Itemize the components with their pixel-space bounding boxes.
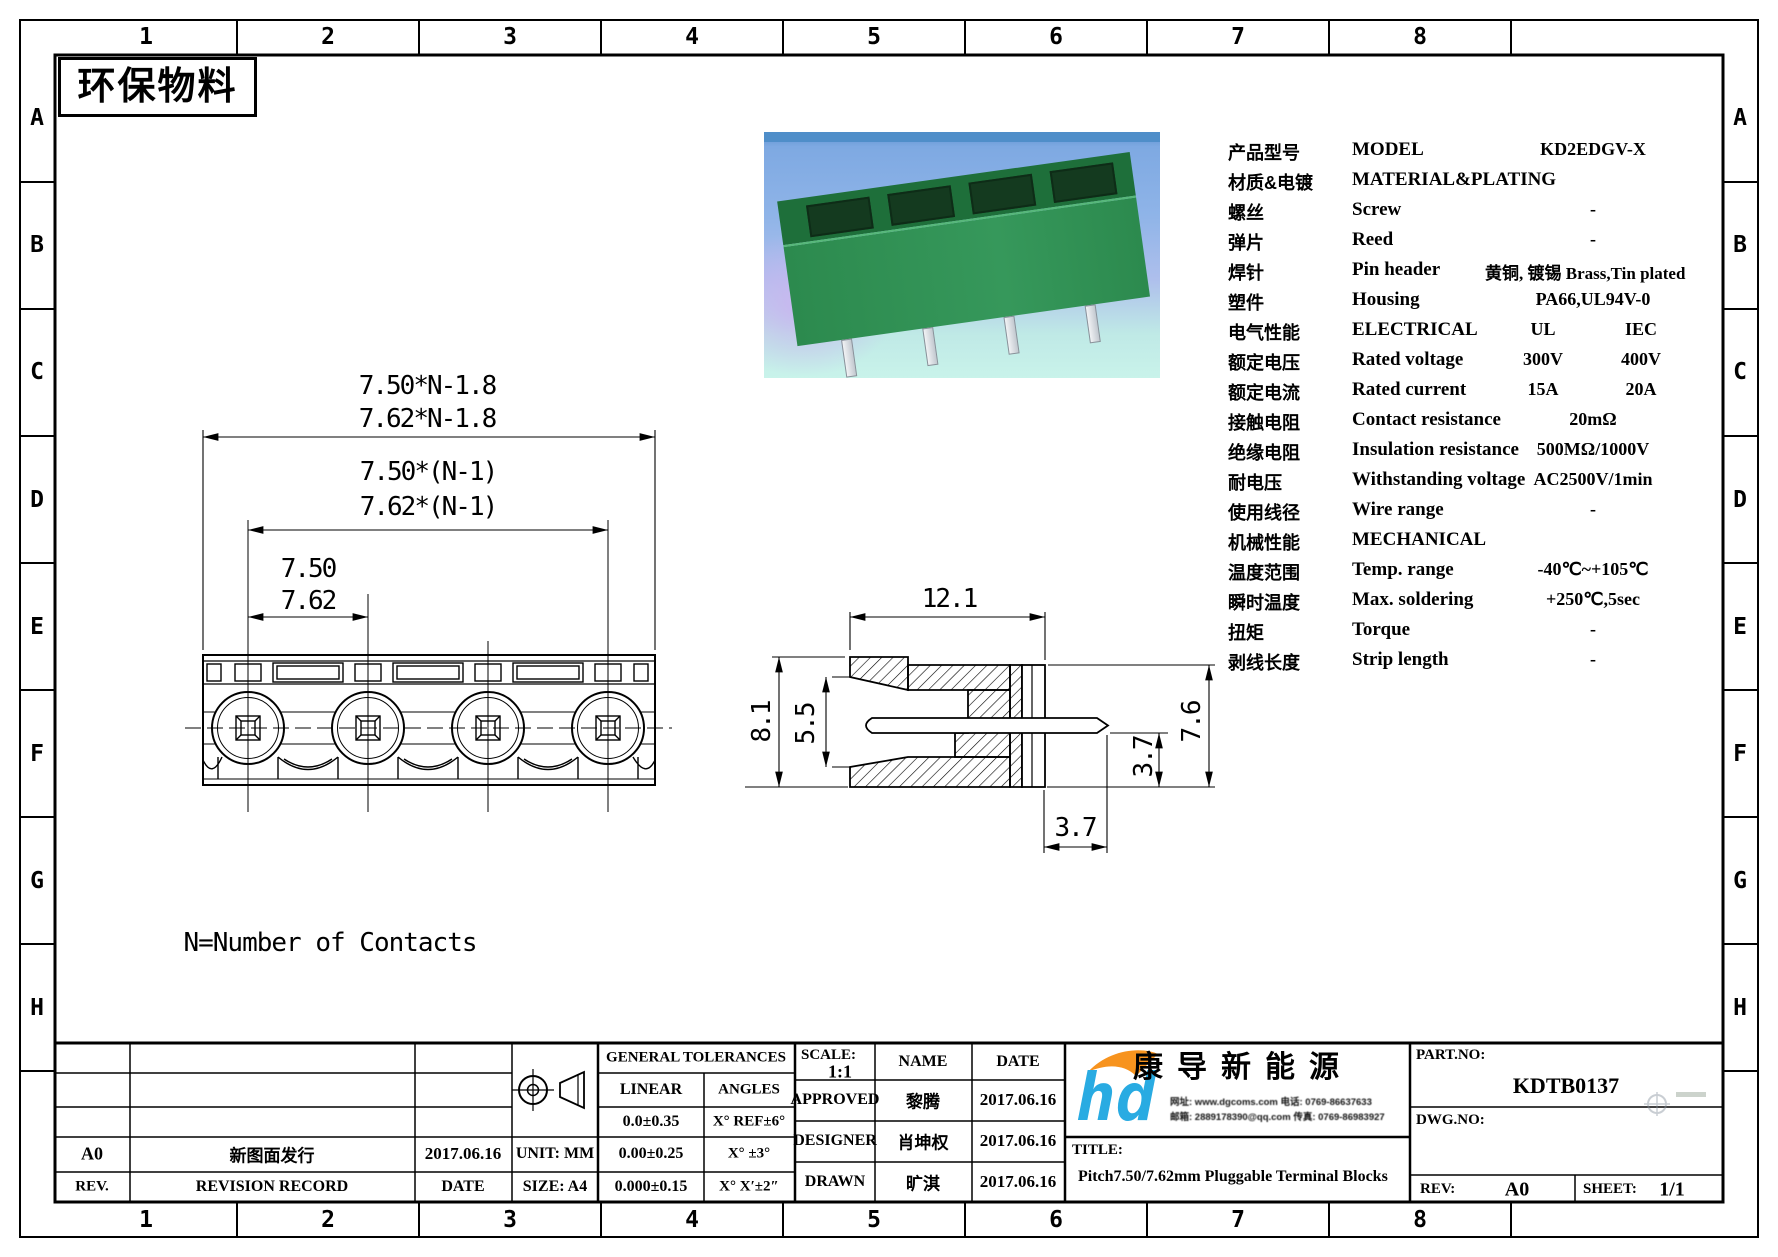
spec-row: 扭矩 Torque - <box>1228 619 1728 649</box>
spec-label-en: Housing <box>1352 289 1420 311</box>
spec-label-en: Pin header <box>1352 259 1440 281</box>
spec-label-cn: 接触电阻 <box>1228 409 1300 435</box>
grid-row-H-left: H <box>30 995 44 1021</box>
photo-top-strip <box>764 132 1160 142</box>
grid-row-B-right: B <box>1733 232 1747 258</box>
company-contact-line2: 邮箱: 2889178390@qq.com 传真: 0769-86983927 <box>1170 1111 1385 1124</box>
spec-value: - <box>1505 199 1681 220</box>
spec-label-en: MODEL <box>1352 139 1424 161</box>
spec-label-en: MECHANICAL <box>1352 529 1486 551</box>
spec-label-cn: 材质&电镀 <box>1228 169 1313 195</box>
spec-row: 螺丝 Screw - <box>1228 199 1728 229</box>
grid-row-F-left: F <box>30 741 44 767</box>
dim-pin-length-37: 3.7 <box>1055 815 1096 841</box>
dim-height-76: 7.6 <box>1179 702 1205 743</box>
contact-slot <box>806 197 874 238</box>
grid-row-G-right: G <box>1733 868 1747 894</box>
solder-pin <box>1085 304 1101 343</box>
tolerance-angle-2: X° ±3° <box>728 1146 770 1163</box>
spec-label-cn: 瞬时温度 <box>1228 589 1300 615</box>
grid-row-A-left: A <box>30 105 44 131</box>
spec-value: - <box>1505 619 1681 640</box>
revision-rev-header: REV. <box>75 1179 109 1196</box>
grid-col-3-bottom: 3 <box>503 1207 517 1233</box>
spec-value: - <box>1505 499 1681 520</box>
grid-row-E-right: E <box>1733 614 1747 640</box>
spec-row: 剥线长度 Strip length - <box>1228 649 1728 679</box>
spec-label-cn: 绝缘电阻 <box>1228 439 1300 465</box>
spec-label-cn: 耐电压 <box>1228 469 1282 495</box>
grid-col-3-top: 3 <box>503 24 517 50</box>
grid-row-C-right: C <box>1733 359 1747 385</box>
grid-col-8-bottom: 8 <box>1413 1207 1427 1233</box>
spec-row: 机械性能 MECHANICAL <box>1228 529 1728 559</box>
rev-value: A0 <box>1505 1179 1529 1202</box>
dim-span-762: 7.62*(N-1) <box>360 494 497 520</box>
spec-row: 产品型号 MODEL KD2EDGV-X <box>1228 139 1728 169</box>
grid-col-1-bottom: 1 <box>139 1207 153 1233</box>
approved-label: APPROVED <box>791 1091 880 1109</box>
company-contact-line1: 网址: www.dgcoms.com 电话: 0769-86637633 <box>1170 1096 1372 1109</box>
solder-pin <box>841 338 857 377</box>
tolerances-angles-header: ANGLES <box>718 1082 780 1099</box>
dim-total-width-762: 7.62*N-1.8 <box>359 406 496 432</box>
unit-field: UNIT: MM <box>516 1145 594 1163</box>
spec-row: 材质&电镀 MATERIAL&PLATING <box>1228 169 1728 199</box>
grid-col-7-top: 7 <box>1231 24 1245 50</box>
solder-pin <box>1003 316 1019 355</box>
grid-col-7-bottom: 7 <box>1231 1207 1245 1233</box>
tolerance-linear-2: 0.00±0.25 <box>619 1145 684 1163</box>
spec-row: 弹片 Reed - <box>1228 229 1728 259</box>
spec-row: 塑件 Housing PA66,UL94V-0 <box>1228 289 1728 319</box>
spec-row: 额定电流 Rated current 15A 20A <box>1228 379 1728 409</box>
spec-value-ul: 15A <box>1495 379 1591 400</box>
spec-label-cn: 塑件 <box>1228 289 1264 315</box>
tolerance-linear-3: 0.000±0.15 <box>615 1178 688 1196</box>
spec-label-en: Rated voltage <box>1352 349 1463 371</box>
spec-label-cn: 额定电流 <box>1228 379 1300 405</box>
dim-opening-55: 5.5 <box>793 704 819 745</box>
eco-material-stamp: 环保物料 <box>58 57 257 117</box>
spec-value: KD2EDGV-X <box>1505 139 1681 160</box>
grid-col-4-bottom: 4 <box>685 1207 699 1233</box>
approved-date: 2017.06.16 <box>980 1090 1057 1110</box>
designer-name: 肖坤权 <box>898 1129 949 1154</box>
grid-row-D-right: D <box>1733 487 1747 513</box>
spec-label-cn: 焊针 <box>1228 259 1264 285</box>
tolerance-angle-1: X° REF±6° <box>713 1114 785 1131</box>
product-photo <box>764 132 1160 378</box>
spec-label-en: Rated current <box>1352 379 1466 401</box>
spec-label-cn: 剥线长度 <box>1228 649 1300 675</box>
spec-value: +250℃,5sec <box>1505 589 1681 610</box>
grid-col-5-bottom: 5 <box>867 1207 881 1233</box>
grid-row-B-left: B <box>30 232 44 258</box>
drawing-title: Pitch7.50/7.62mm Pluggable Terminal Bloc… <box>1078 1168 1388 1186</box>
spec-value-iec: 20A <box>1593 379 1689 400</box>
grid-col-1-top: 1 <box>139 24 153 50</box>
spec-value-iec: IEC <box>1593 319 1689 340</box>
front-view-drawing <box>185 430 672 812</box>
spec-row: 温度范围 Temp. range -40℃~+105℃ <box>1228 559 1728 589</box>
contacts-note: N=Number of Contacts <box>180 928 480 959</box>
spec-row: 电气性能 ELECTRICAL UL IEC <box>1228 319 1728 349</box>
grid-col-5-top: 5 <box>867 24 881 50</box>
spec-label-en: Wire range <box>1352 499 1444 521</box>
terminal-block-render <box>777 152 1151 352</box>
spec-label-cn: 弹片 <box>1228 229 1264 255</box>
third-angle-projection-icon <box>512 1069 584 1111</box>
grid-col-2-top: 2 <box>321 24 335 50</box>
designer-date: 2017.06.16 <box>980 1131 1057 1151</box>
dim-total-width-750: 7.50*N-1.8 <box>359 373 496 399</box>
spec-row: 绝缘电阻 Insulation resistance 500MΩ/1000V <box>1228 439 1728 469</box>
part-no-value: KDTB0137 <box>1513 1073 1619 1099</box>
grid-col-2-bottom: 2 <box>321 1207 335 1233</box>
spec-label-en: Contact resistance <box>1352 409 1501 431</box>
grid-row-H-right: H <box>1733 995 1747 1021</box>
spec-label-cn: 电气性能 <box>1228 319 1300 345</box>
spec-label-cn: 产品型号 <box>1228 139 1300 165</box>
grid-col-6-bottom: 6 <box>1049 1207 1063 1233</box>
dim-depth-121: 12.1 <box>922 586 977 612</box>
name-header: NAME <box>899 1053 948 1071</box>
part-no-label: PART.NO: <box>1416 1047 1485 1064</box>
spec-label-cn: 温度范围 <box>1228 559 1300 585</box>
dim-pitch-750: 7.50 <box>281 556 336 582</box>
spec-value-ul: UL <box>1495 319 1591 340</box>
dwg-no-label: DWG.NO: <box>1416 1112 1485 1129</box>
tolerances-title: GENERAL TOLERANCES <box>606 1050 786 1067</box>
spec-row: 接触电阻 Contact resistance 20mΩ <box>1228 409 1728 439</box>
spec-row: 耐电压 Withstanding voltage AC2500V/1min <box>1228 469 1728 499</box>
spec-value-ul: 300V <box>1495 349 1591 370</box>
spec-label-en: Max. soldering <box>1352 589 1473 611</box>
contact-slot <box>887 185 955 226</box>
spec-value: - <box>1505 229 1681 250</box>
grid-row-D-left: D <box>30 487 44 513</box>
tolerance-angle-3: X° X′±2″ <box>719 1179 779 1196</box>
spec-label-cn: 机械性能 <box>1228 529 1300 555</box>
spec-value: 20mΩ <box>1505 409 1681 430</box>
spec-label-cn: 额定电压 <box>1228 349 1300 375</box>
tolerances-linear-header: LINEAR <box>620 1081 682 1099</box>
spec-label-en: MATERIAL&PLATING <box>1352 169 1556 191</box>
drawn-label: DRAWN <box>805 1173 865 1191</box>
contact-slot <box>968 174 1036 215</box>
scale-value: 1:1 <box>828 1062 852 1083</box>
sheet-value: 1/1 <box>1659 1179 1685 1202</box>
spec-row: 使用线径 Wire range - <box>1228 499 1728 529</box>
approved-name: 黎腾 <box>906 1088 940 1113</box>
dim-height-81: 8.1 <box>749 702 775 743</box>
spec-label-cn: 使用线径 <box>1228 499 1300 525</box>
spec-row: 额定电压 Rated voltage 300V 400V <box>1228 349 1728 379</box>
dim-pitch-762: 7.62 <box>281 588 336 614</box>
grid-row-F-right: F <box>1733 741 1747 767</box>
solder-pin <box>922 327 938 366</box>
spec-row: 焊针 Pin header 黄铜, 镀锡 Brass,Tin plated <box>1228 259 1728 289</box>
revision-record-header: REVISION RECORD <box>196 1178 348 1196</box>
drawing-sheet: 1122334455667788AABBCCDDEEFFGGHH 环保物料 产品… <box>0 0 1778 1257</box>
grid-row-C-left: C <box>30 359 44 385</box>
spec-label-en: Insulation resistance <box>1352 439 1519 461</box>
grid-col-8-top: 8 <box>1413 24 1427 50</box>
spec-label-cn: 扭矩 <box>1228 619 1264 645</box>
dim-span-750: 7.50*(N-1) <box>360 459 497 485</box>
faint-stamp-icon <box>1644 1092 1706 1116</box>
spec-label-en: Screw <box>1352 199 1401 221</box>
designer-label: DESIGNER <box>793 1132 877 1150</box>
dim-pin-offset-37: 3.7 <box>1131 737 1157 778</box>
size-field: SIZE: A4 <box>523 1178 587 1196</box>
spec-value: AC2500V/1min <box>1505 469 1681 490</box>
spec-value: PA66,UL94V-0 <box>1505 289 1681 310</box>
spec-value-iec: 400V <box>1593 349 1689 370</box>
revision-record-value: 新图面发行 <box>230 1142 315 1167</box>
grid-row-A-right: A <box>1733 105 1747 131</box>
drawn-date: 2017.06.16 <box>980 1172 1057 1192</box>
spec-label-en: Reed <box>1352 229 1393 251</box>
grid-col-6-top: 6 <box>1049 24 1063 50</box>
revision-date-value: 2017.06.16 <box>425 1144 502 1164</box>
title-label: TITLE: <box>1072 1142 1123 1159</box>
contact-slot <box>1050 162 1118 203</box>
tolerance-linear-1: 0.0±0.35 <box>623 1113 680 1131</box>
grid-col-4-top: 4 <box>685 24 699 50</box>
revision-date-header: DATE <box>441 1178 484 1196</box>
spec-label-en: Torque <box>1352 619 1410 641</box>
grid-row-E-left: E <box>30 614 44 640</box>
spec-label-en: Withstanding voltage <box>1352 469 1525 491</box>
grid-row-G-left: G <box>30 868 44 894</box>
company-name: 康导新能源 <box>1133 1053 1353 1083</box>
spec-value: 黄铜, 镀锡 Brass,Tin plated <box>1485 259 1685 284</box>
revision-rev-value: A0 <box>81 1144 103 1165</box>
spec-label-en: ELECTRICAL <box>1352 319 1478 341</box>
spec-value: - <box>1505 649 1681 670</box>
spec-label-en: Temp. range <box>1352 559 1454 581</box>
eco-material-stamp-text: 环保物料 <box>77 68 237 106</box>
spec-value: -40℃~+105℃ <box>1505 559 1681 580</box>
spec-label-en: Strip length <box>1352 649 1449 671</box>
rev-label: REV: <box>1420 1181 1455 1198</box>
date-header: DATE <box>996 1053 1039 1071</box>
sheet-label: SHEET: <box>1583 1181 1637 1198</box>
spec-value: 500MΩ/1000V <box>1505 439 1681 460</box>
drawn-name: 旷淇 <box>906 1170 940 1195</box>
spec-row: 瞬时温度 Max. soldering +250℃,5sec <box>1228 589 1728 619</box>
spec-label-cn: 螺丝 <box>1228 199 1264 225</box>
